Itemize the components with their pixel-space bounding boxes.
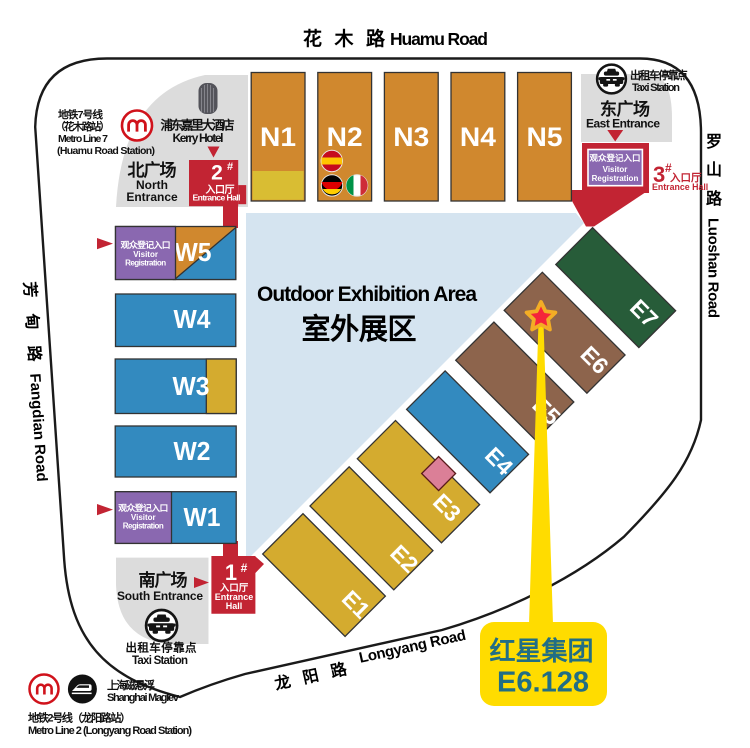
svg-text:罗: 罗 [706,133,722,151]
svg-text:N5: N5 [527,122,563,152]
svg-text:地铁2号线（龙阳路站）: 地铁2号线（龙阳路站） [28,711,131,725]
svg-text:#: # [227,161,233,173]
svg-text:Huamu Road: Huamu Road [390,29,488,49]
svg-text:Metro Line 2 (Longyang Road St: Metro Line 2 (Longyang Road Station) [28,725,192,737]
svg-text:Taxi Station: Taxi Station [132,655,188,667]
svg-text:Entrance Hall: Entrance Hall [652,182,708,192]
svg-text:N4: N4 [460,122,496,152]
svg-text:花木路: 花木路 [303,27,398,50]
svg-text:Hall: Hall [226,601,243,611]
svg-text:Taxi Station: Taxi Station [632,82,680,94]
svg-text:W4: W4 [174,304,212,334]
svg-text:出租车停靠点: 出租车停靠点 [126,641,198,655]
svg-text:北广场: 北广场 [128,160,177,180]
svg-text:N1: N1 [260,122,296,152]
svg-text:Entrance Hall: Entrance Hall [193,193,241,203]
svg-text:Shanghai Maglev: Shanghai Maglev [107,692,180,704]
svg-text:Outdoor Exhibition Area: Outdoor Exhibition Area [257,283,477,306]
svg-text:南广场: 南广场 [139,570,188,590]
svg-text:Kerry Hotel: Kerry Hotel [173,131,224,145]
svg-text:山: 山 [706,161,722,179]
svg-text:2: 2 [211,162,223,185]
svg-text:E6.128: E6.128 [497,667,589,699]
svg-text:Visitor: Visitor [603,165,628,174]
svg-text:W3: W3 [173,371,210,401]
svg-text:上海磁悬浮: 上海磁悬浮 [107,678,155,692]
svg-text:甸: 甸 [22,312,42,330]
svg-text:（花木路站）: （花木路站） [55,120,110,133]
svg-text:Metro Line 7: Metro Line 7 [58,133,108,145]
svg-text:#: # [241,561,248,575]
svg-text:观众登记入口: 观众登记入口 [121,239,171,250]
svg-text:(Huamu Road Station): (Huamu Road Station) [57,145,155,157]
svg-text:Registration: Registration [125,259,166,268]
svg-text:N2: N2 [327,122,363,152]
svg-text:South Entrance: South Entrance [117,589,203,603]
svg-text:观众登记入口: 观众登记入口 [118,502,168,513]
svg-text:地铁7号线: 地铁7号线 [58,108,104,121]
svg-text:路: 路 [706,189,723,208]
svg-text:Entrance: Entrance [126,190,178,204]
svg-text:红星集团: 红星集团 [490,636,594,666]
svg-text:W1: W1 [184,502,221,532]
svg-text:出租车停靠点: 出租车停靠点 [630,68,688,82]
svg-text:Registration: Registration [123,522,164,531]
svg-text:室外展区: 室外展区 [302,312,417,346]
svg-text:观众登记入口: 观众登记入口 [589,153,640,163]
svg-text:East Entrance: East Entrance [586,117,660,131]
svg-text:1: 1 [225,560,237,585]
svg-text:N3: N3 [393,122,429,152]
svg-text:Registration: Registration [592,174,639,183]
svg-text:Luoshan Road: Luoshan Road [705,218,722,318]
svg-text:W2: W2 [174,436,211,466]
svg-text:芳: 芳 [20,281,40,298]
svg-text:路: 路 [24,345,44,363]
svg-text:W5: W5 [175,237,212,267]
